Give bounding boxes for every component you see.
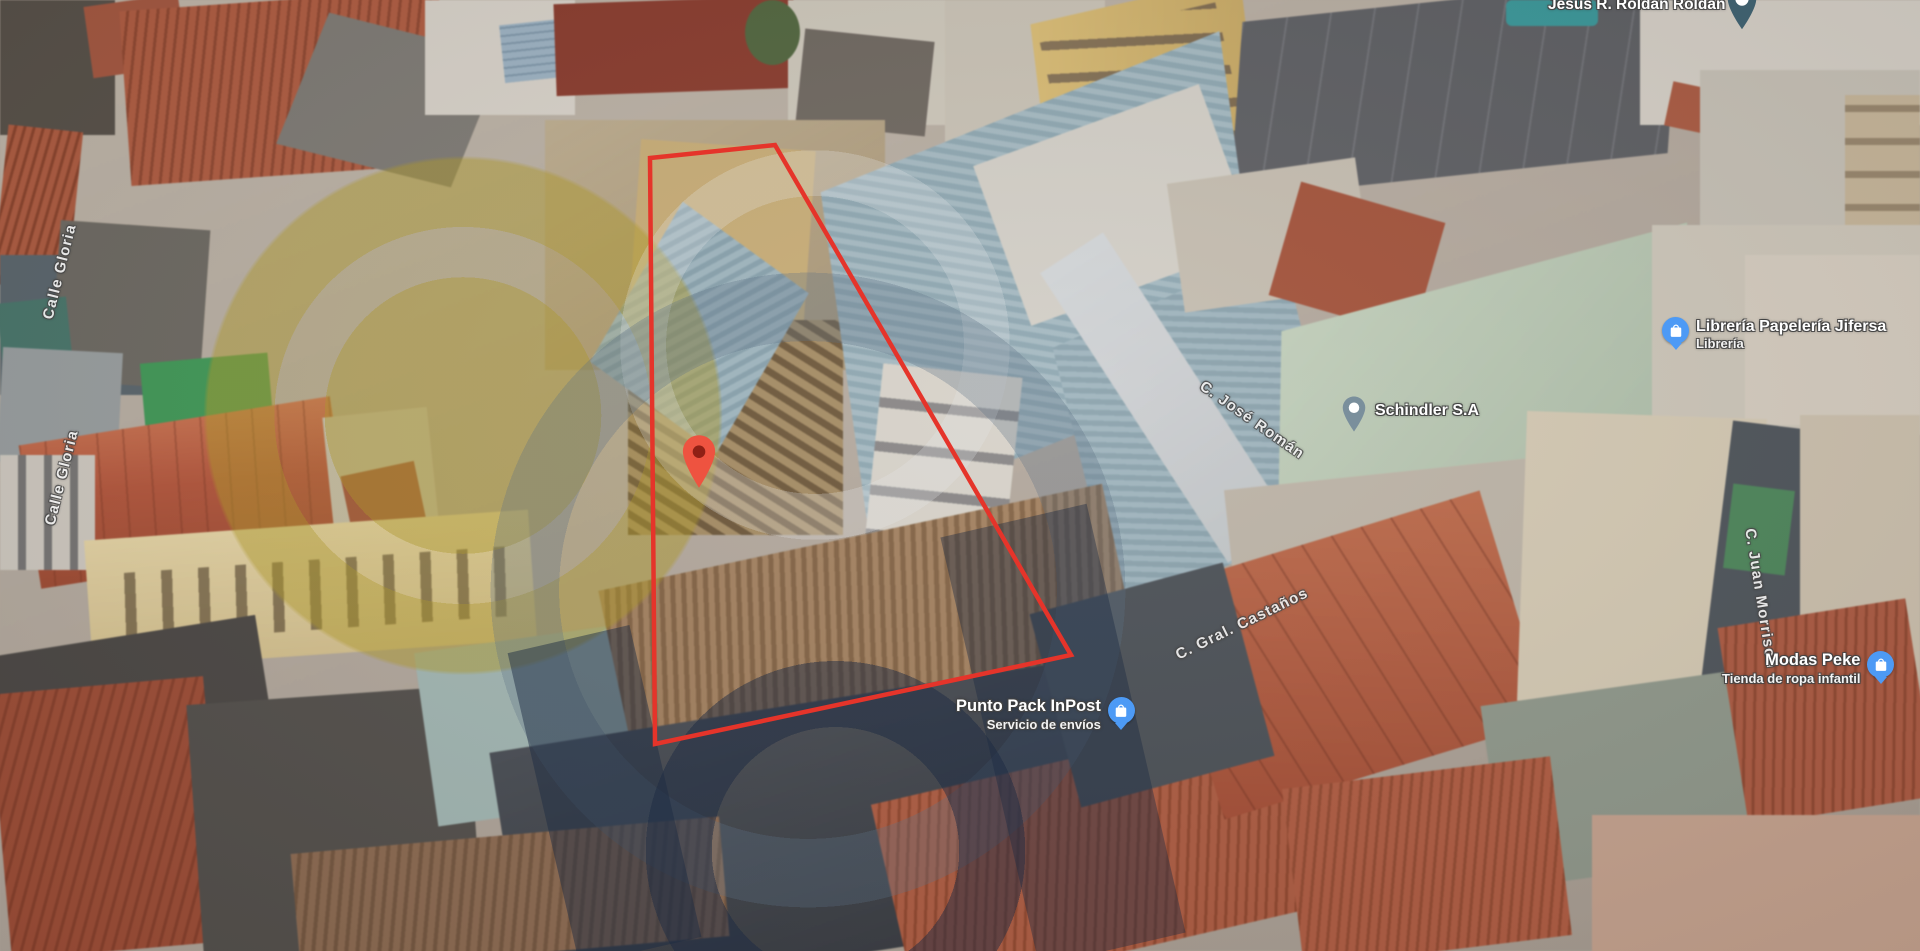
poi-punto-pack-subtitle: Servicio de envíos (956, 717, 1101, 733)
poi-libreria-subtitle: Librería (1696, 336, 1886, 352)
tree (745, 0, 800, 65)
shopping-bag-icon (1874, 658, 1888, 672)
poi-punto-pack-title: Punto Pack InPost (956, 697, 1101, 717)
poi-jesus-roldan[interactable]: Jesús R. Roldán Roldán (1548, 0, 1725, 15)
shopping-bag-pin-icon (1108, 697, 1135, 724)
roof-terracotta (1282, 756, 1572, 951)
poi-modas-peke-subtitle: Tienda de ropa infantil (1722, 671, 1860, 687)
shopping-bag-pin-icon (1662, 317, 1689, 344)
map-pin-icon[interactable] (1339, 395, 1369, 433)
shopping-bag-pin-icon (1867, 651, 1894, 678)
poi-schindler[interactable]: Schindler S.A (1375, 401, 1479, 420)
shopping-bag-icon (1669, 324, 1683, 338)
map-viewport[interactable]: Calle Gloria Calle Gloria C. José Román … (0, 0, 1920, 951)
map-pin-icon[interactable] (1723, 0, 1761, 31)
aerial-imagery (0, 0, 1920, 951)
poi-schindler-title: Schindler S.A (1375, 401, 1479, 420)
poi-libreria-title: Librería Papelería Jifersa (1696, 317, 1886, 336)
building-pink (1592, 815, 1920, 951)
poi-modas-peke[interactable]: Modas Peke Tienda de ropa infantil (1722, 651, 1894, 686)
property-pin-marker[interactable] (678, 433, 720, 490)
poi-jesus-roldan-title: Jesús R. Roldán Roldán (1548, 0, 1725, 15)
poi-modas-peke-title: Modas Peke (1722, 651, 1860, 671)
poi-punto-pack[interactable]: Punto Pack InPost Servicio de envíos (956, 697, 1135, 732)
roof-terracotta (1718, 598, 1920, 825)
poi-libreria-jifersa[interactable]: Librería Papelería Jifersa Librería (1662, 317, 1886, 352)
shopping-bag-icon (1114, 704, 1128, 718)
